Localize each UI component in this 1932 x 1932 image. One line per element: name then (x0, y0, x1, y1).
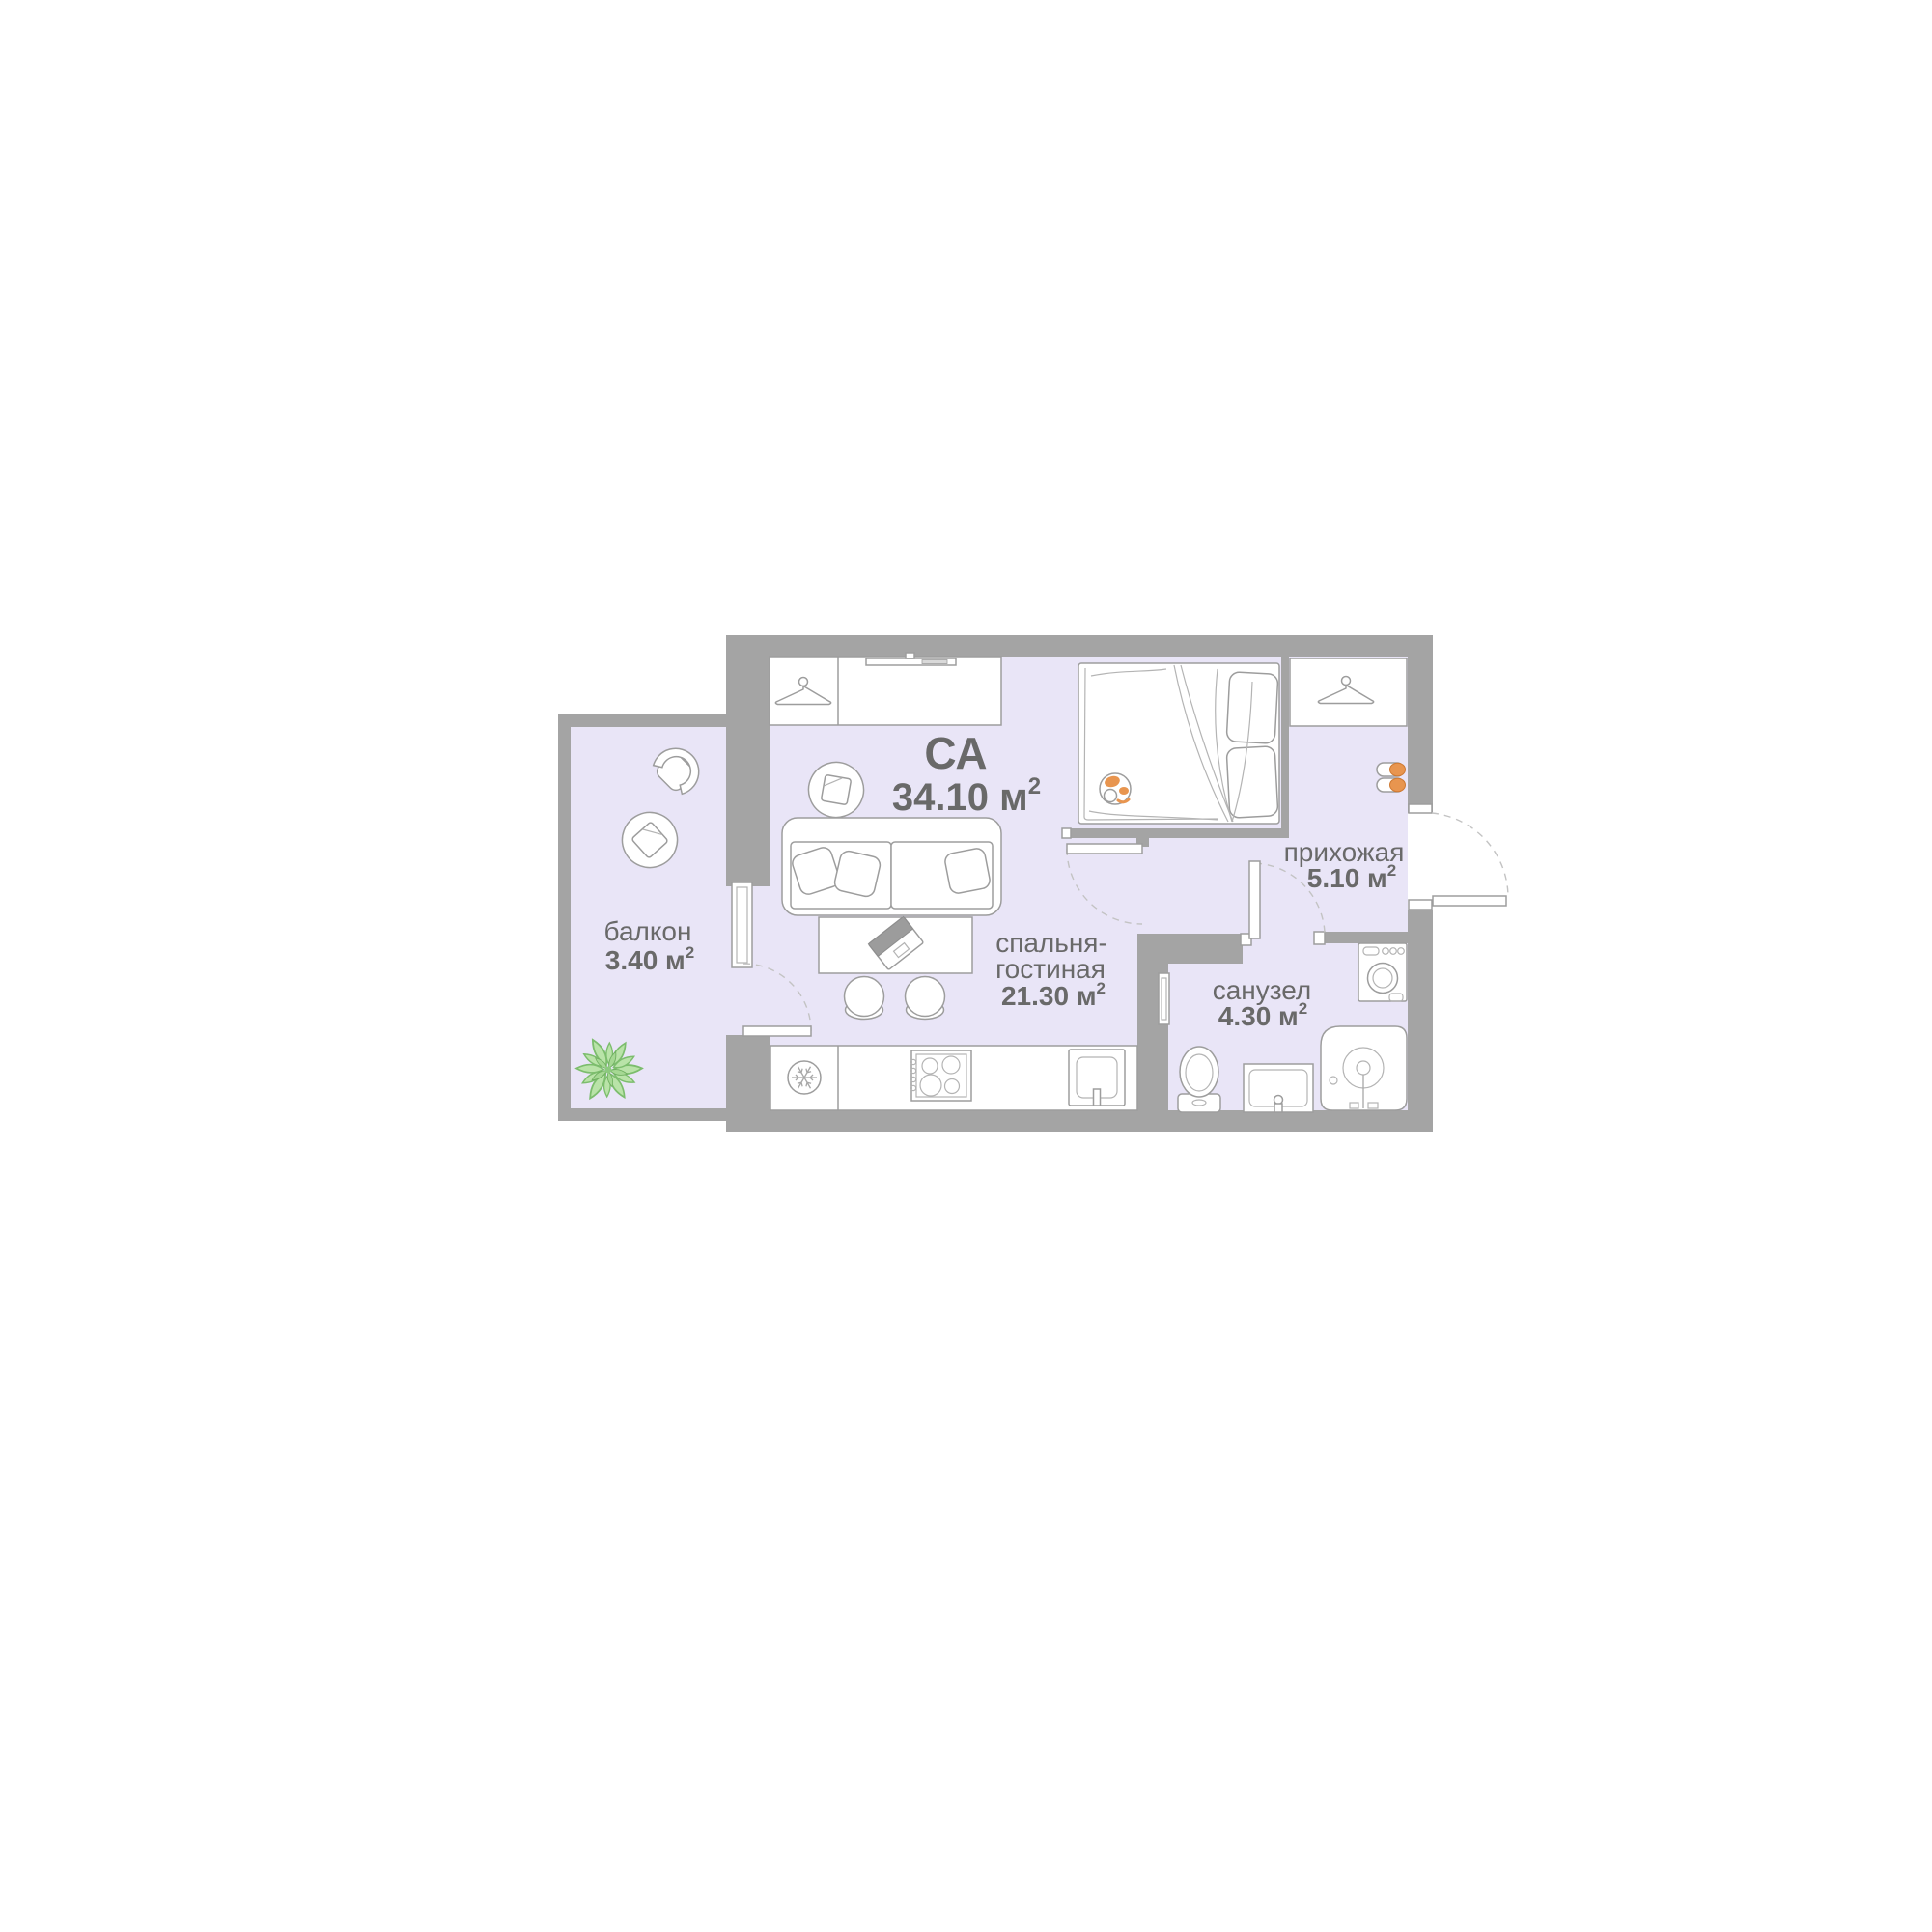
stool (906, 977, 945, 1020)
wall-balcony-bottom (571, 1108, 726, 1121)
stool (845, 977, 884, 1020)
kitchen-sink (1069, 1050, 1125, 1106)
coffee-table (819, 916, 972, 973)
towel-rail (1159, 973, 1169, 1024)
apartment-code: СА (924, 728, 987, 778)
washing-machine-icon (1358, 943, 1407, 1001)
room-area-balcony: 3.40 м2 (605, 943, 694, 975)
wall-right-upper (1408, 657, 1433, 813)
room-area-hallway: 5.10 м2 (1307, 861, 1396, 893)
room-label-balcony: балкон (604, 916, 692, 946)
wardrobe-hallway (1290, 658, 1407, 726)
bathroom-sink (1244, 1064, 1313, 1112)
wall-balcony-partition-upper (726, 657, 770, 886)
wall-bed-wardrobe-divider (1281, 655, 1289, 833)
sofa-pillow (833, 850, 882, 898)
stove (910, 1050, 971, 1101)
room-label-living-line2: гостиная (995, 954, 1106, 984)
bed-pillow (1226, 746, 1278, 819)
bathroom-door-leaf (1249, 861, 1260, 938)
wall-balcony-top (571, 714, 726, 727)
balcony-door-leaf (743, 1026, 811, 1036)
entrance-door-leaf (1433, 896, 1506, 906)
entrance-door (1409, 804, 1508, 910)
bed (1078, 663, 1279, 824)
wall-bathroom-top (1137, 934, 1243, 964)
wall-balcony-partition-lower (726, 1035, 770, 1110)
floor-plan-page: СА 34.10 м2 балкон 3.40 м2 спальня- гост… (0, 0, 1932, 1932)
wall-bathroom-top-right (1323, 932, 1408, 943)
apartment-area: 34.10 м2 (892, 773, 1041, 819)
room-area-living: 21.30 м2 (1001, 979, 1106, 1011)
bedroom-door-leaf (1067, 844, 1142, 854)
cat-icon (1100, 773, 1131, 804)
room-area-bathroom: 4.30 м2 (1218, 999, 1307, 1031)
sofa (782, 818, 1001, 915)
sofa-pillow (943, 847, 991, 894)
toilet (1178, 1047, 1220, 1112)
wall-bottom (726, 1110, 1433, 1132)
balcony-window (732, 882, 752, 967)
snowflake-icon (788, 1061, 821, 1094)
shower (1321, 1026, 1407, 1110)
wall-balcony-left (558, 714, 571, 1121)
door-swing-arc (1432, 813, 1508, 898)
floor-plan: СА 34.10 м2 балкон 3.40 м2 спальня- гост… (0, 0, 1932, 1932)
wall-right-lower (1408, 910, 1433, 1132)
wall-top (726, 635, 1433, 657)
wardrobe-living (770, 653, 1001, 725)
wall-bed-niche (1064, 828, 1289, 838)
kitchen-counter (770, 1046, 1137, 1110)
